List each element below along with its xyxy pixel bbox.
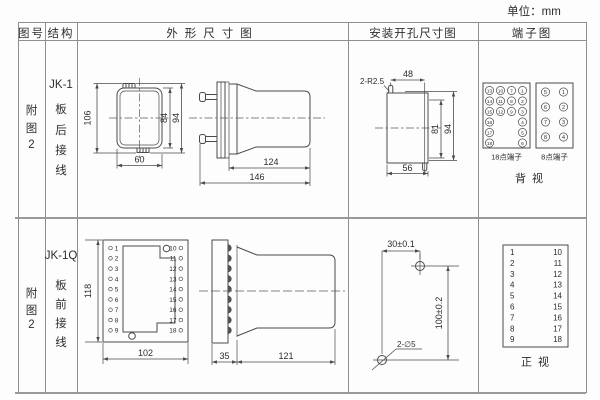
terminal-pin-number: 12 xyxy=(498,109,504,115)
terminal-number: 3 xyxy=(115,266,119,273)
terminal-pin-number: 4 xyxy=(521,120,524,126)
terminal-pin-number: 13 xyxy=(487,88,493,94)
jk1q-terminal-diagram: 110211312413514615716817918 正视 xyxy=(478,218,586,393)
terminal-pin-number: 9 xyxy=(510,109,513,115)
terminal-number: 2 xyxy=(115,256,119,263)
terminal-dot xyxy=(179,287,183,291)
terminal-number: 12 xyxy=(553,270,562,279)
row2-structure-char: 线 xyxy=(45,334,77,350)
rear-view-label: 背视 xyxy=(515,171,549,185)
row1-structure-char: 后 xyxy=(45,122,77,138)
terminal-number: 11 xyxy=(170,256,177,263)
dim-84: 84 xyxy=(159,113,169,123)
row2-structure-char: 接 xyxy=(45,315,77,331)
jk1q-outline-drawing: 110211312413514615716817918 118 102 35 1… xyxy=(77,218,348,393)
terminal-number: 17 xyxy=(553,324,562,333)
terminal-number: 12 xyxy=(169,266,177,273)
terminal-number: 8 xyxy=(510,324,515,333)
hole-label: 2-∅5 xyxy=(397,340,416,349)
row1-fig-char: 图 xyxy=(18,120,45,136)
extension-lines xyxy=(382,251,420,354)
jk1q-mounting-drawing: 30±0.1 100±0.2 2-∅5 xyxy=(348,218,478,393)
terminal-dot xyxy=(179,329,183,333)
table-border-right xyxy=(586,22,587,393)
jk1-stud-bottom xyxy=(200,135,206,144)
dim-100: 100±0.2 xyxy=(434,297,444,329)
leader-line xyxy=(372,349,422,370)
dim-35: 35 xyxy=(219,351,229,361)
terminal-dot xyxy=(109,256,113,260)
terminal-number: 16 xyxy=(169,307,177,314)
row1-structure-model: JK-1 xyxy=(45,79,77,91)
header-terminal: 端子图 xyxy=(478,25,586,41)
jk1-front-bottom-tab xyxy=(137,148,149,153)
header-structure: 结构 xyxy=(45,25,77,41)
jk1-stud-top xyxy=(200,93,206,102)
dim-106: 106 xyxy=(83,110,93,125)
terminal-number: 1 xyxy=(115,245,119,252)
mount-screw-bottom xyxy=(129,333,136,340)
terminal-bump xyxy=(228,265,231,272)
dim-30: 30±0.1 xyxy=(387,239,414,249)
header-fig-no: 图号 xyxy=(18,25,45,41)
terminal-bump xyxy=(228,286,231,293)
terminal-number: 1 xyxy=(510,248,515,257)
terminal-number: 6 xyxy=(510,303,515,312)
terminal-dot xyxy=(109,308,113,312)
terminal-number: 9 xyxy=(115,328,119,335)
jk1-outline-drawing: 106 84 94 60 124 146 xyxy=(77,40,348,218)
extension-lines xyxy=(212,329,335,365)
terminal-number: 8 xyxy=(115,317,119,324)
terminal-dot xyxy=(179,256,183,260)
terminal-dot xyxy=(179,308,183,312)
terminal-number: 7 xyxy=(115,307,119,314)
terminal-bump xyxy=(228,306,231,313)
dim-81: 81 xyxy=(430,124,440,134)
jk1q-case-body xyxy=(237,247,335,336)
terminal-bump xyxy=(228,255,231,262)
dim-102: 102 xyxy=(138,348,153,358)
terminal-number: 7 xyxy=(510,313,515,322)
unit-label: 单位：mm xyxy=(482,3,586,19)
terminal-number: 16 xyxy=(553,313,562,322)
terminal-pin-number: 5 xyxy=(521,130,524,136)
jk1-stud-bottom-thread xyxy=(206,137,218,142)
terminal-number: 14 xyxy=(553,292,562,301)
terminal-grid-18: 131071141182151293164175186 xyxy=(485,86,526,147)
jk1-front-top-tab xyxy=(123,84,135,89)
terminal-bump xyxy=(228,296,231,303)
dim-146: 146 xyxy=(249,172,264,182)
row1-structure-char: 板 xyxy=(45,101,77,117)
terminal-number: 17 xyxy=(169,317,177,324)
terminal-number: 9 xyxy=(510,335,515,344)
jk1q-front-terminals: 110211312413514615716817918 xyxy=(109,245,183,334)
row1-fig-char: 附 xyxy=(18,102,45,118)
terminal-number: 18 xyxy=(553,335,562,344)
header-outline: 外形尺寸图 xyxy=(77,25,348,41)
jk1-stud-top-thread xyxy=(206,95,218,100)
terminal-grid-8: 51627384 xyxy=(541,88,567,141)
row1-structure-char: 接 xyxy=(45,142,77,158)
terminal-dot xyxy=(179,318,183,322)
terminal-pin-number: 6 xyxy=(521,141,524,147)
dim-124: 124 xyxy=(263,157,278,167)
jk1q-front-panel xyxy=(212,240,228,343)
slot-label: 2-R2.5 xyxy=(360,77,385,86)
terminal-number: 5 xyxy=(510,292,515,301)
terminal-dot xyxy=(109,267,113,271)
terminal-dot xyxy=(179,267,183,271)
table-border-top xyxy=(18,22,586,23)
terminal-number: 13 xyxy=(553,281,562,290)
row2-fig-char: 图 xyxy=(18,302,45,318)
terminal-pin-number: 1 xyxy=(562,90,565,96)
terminal-dot xyxy=(109,318,113,322)
row2-structure-model: JK-1Q xyxy=(43,250,79,262)
terminal-bump xyxy=(228,317,231,324)
dim-60: 60 xyxy=(134,155,144,165)
dim-48: 48 xyxy=(403,69,413,79)
dim-118: 118 xyxy=(83,284,93,298)
jk1-case-body xyxy=(229,84,310,154)
terminal-number: 5 xyxy=(115,287,119,294)
terminal-bump xyxy=(228,245,231,252)
terminal-number: 13 xyxy=(169,276,177,283)
front-view-label: 正视 xyxy=(521,355,555,369)
jk1-terminal-diagram: 131071141182151293164175186 51627384 18点… xyxy=(478,40,586,218)
dim-121: 121 xyxy=(278,351,293,361)
terminal-pin-number: 7 xyxy=(510,88,513,94)
terminal-number: 15 xyxy=(553,303,562,312)
terminal-pin-number: 16 xyxy=(487,120,493,126)
dim-94: 94 xyxy=(171,113,181,123)
terminal-pin-number: 18 xyxy=(487,141,493,147)
terminal-pin-number: 8 xyxy=(544,135,547,141)
terminal-number: 4 xyxy=(115,276,119,283)
terminal-pin-number: 17 xyxy=(487,130,493,136)
terminal-bump xyxy=(228,327,231,334)
terminal-number: 10 xyxy=(169,245,177,252)
terminal-pin-number: 15 xyxy=(487,109,493,115)
terminal-pin-number: 2 xyxy=(562,105,565,111)
jk1q-terminal-bumps xyxy=(228,245,231,334)
terminal-number: 3 xyxy=(510,270,515,279)
jk1q-front-step-outline xyxy=(123,246,175,332)
terminal-dot xyxy=(179,246,183,250)
terminal-dot xyxy=(179,298,183,302)
terminal-pin-number: 11 xyxy=(498,99,503,105)
table-border-left xyxy=(18,22,19,393)
terminal-pin-number: 10 xyxy=(498,88,504,94)
terminal-number-columns: 110211312413514615716817918 xyxy=(510,248,563,344)
terminal-dot xyxy=(109,246,113,250)
terminal-pin-number: 2 xyxy=(521,99,524,105)
row2-fig-char: 附 xyxy=(18,285,45,301)
terminal-number: 4 xyxy=(510,281,515,290)
terminal-pin-number: 8 xyxy=(510,99,513,105)
header-mounting: 安装开孔尺寸图 xyxy=(348,25,478,41)
hole-crosslines xyxy=(411,254,459,275)
terminal-pin-number: 3 xyxy=(521,109,524,115)
terminal-bump xyxy=(228,276,231,283)
terminal-number: 15 xyxy=(169,297,177,304)
terminal-number: 18 xyxy=(169,328,177,335)
dim-56: 56 xyxy=(402,163,412,173)
terminal-pin-number: 14 xyxy=(487,99,493,105)
label-18-point: 18点端子 xyxy=(491,152,522,162)
row1-structure-char: 线 xyxy=(45,162,77,178)
terminal-number: 10 xyxy=(553,248,562,257)
terminal-number: 6 xyxy=(115,297,119,304)
row2-structure-char: 前 xyxy=(45,296,77,312)
terminal-pin-number: 5 xyxy=(544,90,547,96)
terminal-number: 2 xyxy=(510,259,515,268)
row1-fig-char: 2 xyxy=(18,139,45,151)
terminal-dot xyxy=(109,329,113,333)
row2-structure-char: 板 xyxy=(45,277,77,293)
terminal-number: 14 xyxy=(169,287,177,294)
label-8-point: 8点端子 xyxy=(541,152,568,162)
terminal-pin-number: 3 xyxy=(562,120,565,126)
terminal-dot xyxy=(109,277,113,281)
row2-fig-char: 2 xyxy=(18,319,45,331)
terminal-dot xyxy=(179,277,183,281)
relay-dimension-datasheet: 单位：mm 图号 结构 外形尺寸图 安装开孔尺寸图 端子图 附 图 2 JK-1… xyxy=(0,0,600,400)
terminal-dot xyxy=(109,287,113,291)
dim-94: 94 xyxy=(443,124,453,134)
terminal-pin-number: 6 xyxy=(544,105,547,111)
terminal-dot xyxy=(109,298,113,302)
terminal-pin-number: 4 xyxy=(562,135,565,141)
terminal-pin-number: 7 xyxy=(544,120,547,126)
terminal-number: 11 xyxy=(554,259,563,268)
jk1-mounting-drawing: 2-R2.5 48 81 94 56 xyxy=(348,40,478,218)
terminal-pin-number: 1 xyxy=(521,88,524,94)
